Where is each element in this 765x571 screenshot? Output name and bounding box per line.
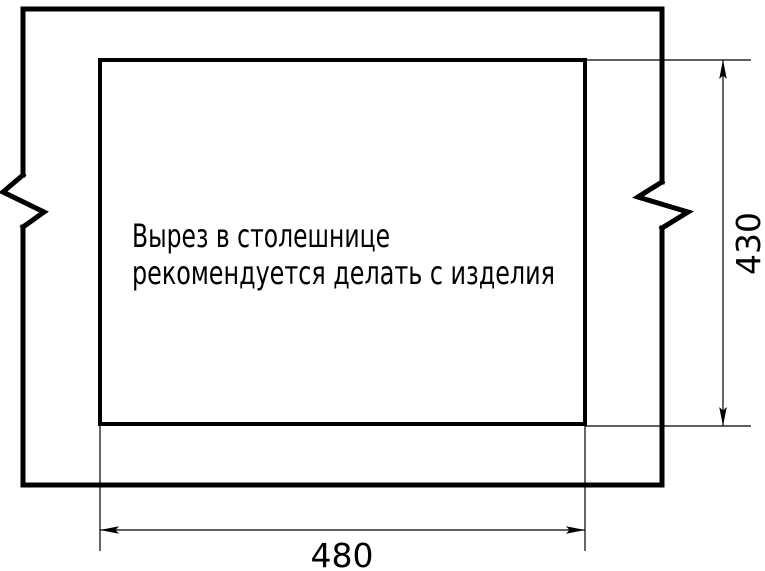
dimension-label-width: 480 — [311, 536, 374, 571]
break-symbol-right-icon — [638, 182, 688, 228]
extension-lines — [100, 60, 751, 551]
countertop-outline-upper — [23, 9, 662, 182]
cutout-note-line2: рекомендуется делать с изделия — [132, 254, 555, 292]
break-symbol-left-icon — [3, 175, 44, 227]
drawing-canvas: Вырез в столешнице рекомендуется делать … — [0, 0, 765, 571]
cutout-note-line1: Вырез в столешнице — [132, 217, 390, 255]
countertop-cutout-drawing: Вырез в столешнице рекомендуется делать … — [0, 0, 765, 571]
dimension-label-height: 430 — [729, 212, 765, 275]
